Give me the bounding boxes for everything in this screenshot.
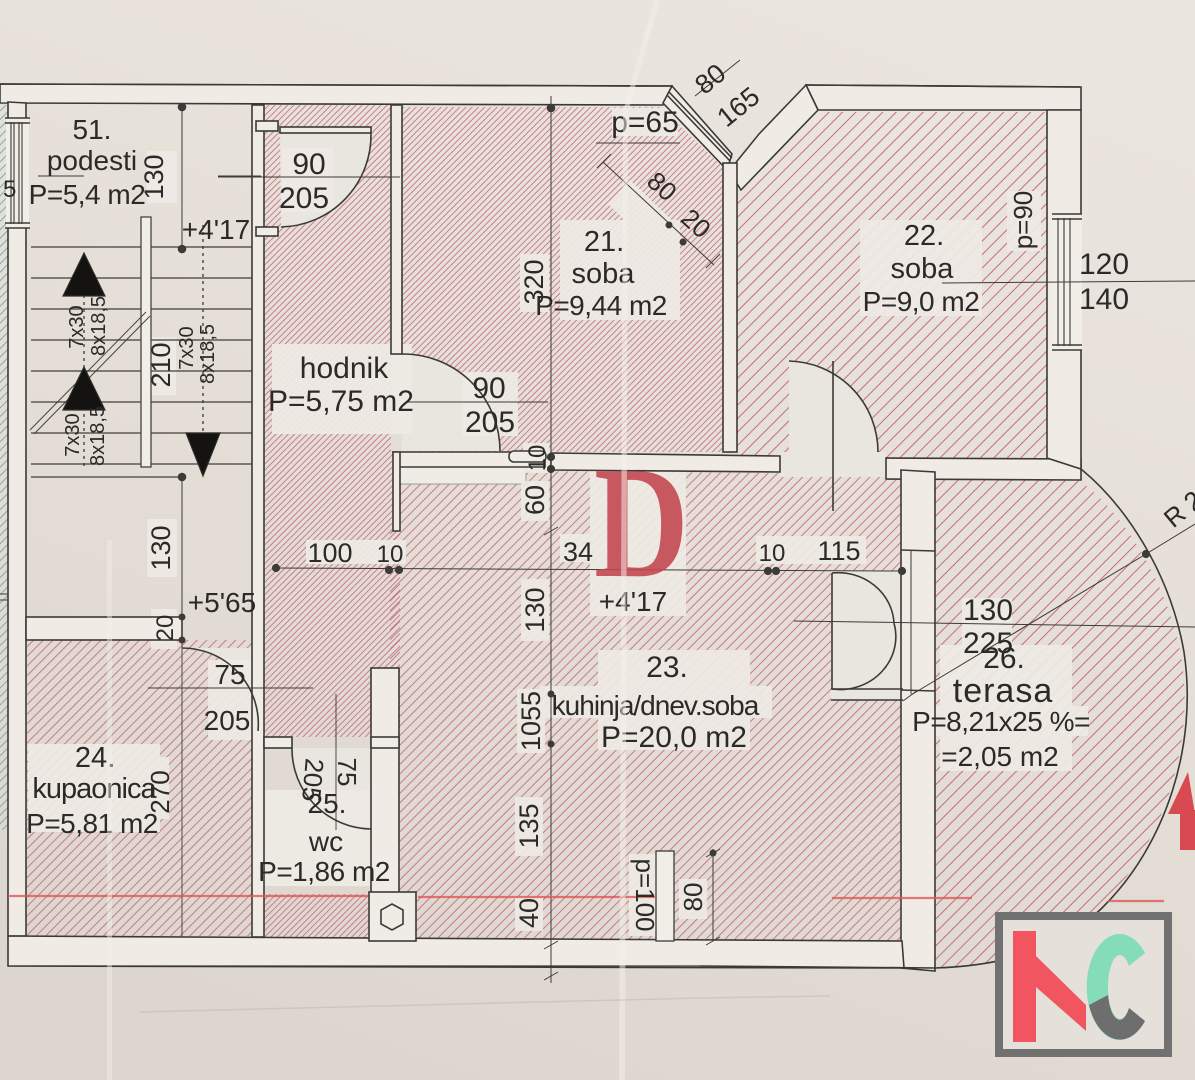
svg-text:+4'17: +4'17 bbox=[182, 214, 250, 245]
svg-text:210: 210 bbox=[146, 342, 176, 387]
svg-text:75: 75 bbox=[332, 758, 362, 787]
svg-text:10: 10 bbox=[377, 541, 404, 568]
svg-text:205: 205 bbox=[465, 406, 515, 439]
svg-text:soba: soba bbox=[891, 253, 955, 285]
svg-text:140: 140 bbox=[1079, 283, 1129, 316]
svg-text:8x18,5: 8x18,5 bbox=[197, 324, 219, 384]
svg-text:60: 60 bbox=[520, 485, 550, 515]
svg-text:23.: 23. bbox=[646, 651, 688, 684]
svg-text:115: 115 bbox=[817, 536, 860, 566]
svg-text:P=8,21x25 %=: P=8,21x25 %= bbox=[912, 706, 1090, 737]
svg-text:205: 205 bbox=[279, 182, 329, 215]
svg-text:+5'65: +5'65 bbox=[188, 587, 256, 618]
svg-text:20: 20 bbox=[152, 615, 179, 642]
svg-text:40: 40 bbox=[514, 898, 544, 928]
svg-text:hodnik: hodnik bbox=[300, 352, 389, 385]
svg-text:P=1,86 m2: P=1,86 m2 bbox=[258, 856, 390, 887]
svg-text:p=100: p=100 bbox=[630, 858, 660, 931]
svg-text:205: 205 bbox=[204, 705, 251, 736]
svg-text:51.: 51. bbox=[73, 114, 112, 145]
svg-text:225: 225 bbox=[963, 627, 1013, 660]
svg-text:P=5,4 m2: P=5,4 m2 bbox=[29, 179, 146, 210]
svg-text:90: 90 bbox=[292, 148, 325, 181]
svg-text:P=5,75 m2: P=5,75 m2 bbox=[268, 385, 414, 418]
svg-text:270: 270 bbox=[145, 770, 175, 813]
svg-text:kupaonica: kupaonica bbox=[32, 773, 157, 805]
svg-text:320: 320 bbox=[519, 259, 549, 304]
svg-text:wc: wc bbox=[308, 826, 343, 857]
svg-text:=2,05 m2: =2,05 m2 bbox=[941, 741, 1059, 772]
svg-text:75: 75 bbox=[214, 659, 245, 690]
svg-text:terasa: terasa bbox=[953, 672, 1054, 710]
svg-text:p=90: p=90 bbox=[1008, 191, 1038, 250]
svg-text:P=9,0 m2: P=9,0 m2 bbox=[863, 286, 980, 317]
svg-text:34: 34 bbox=[563, 537, 593, 567]
svg-text:D: D bbox=[594, 434, 689, 611]
svg-text:100: 100 bbox=[307, 538, 352, 568]
svg-text:P=9,44 m2: P=9,44 m2 bbox=[535, 290, 667, 321]
svg-text:130: 130 bbox=[520, 587, 550, 632]
svg-text:130: 130 bbox=[139, 154, 169, 199]
svg-text:7x30: 7x30 bbox=[62, 413, 84, 456]
svg-text:130: 130 bbox=[963, 594, 1013, 627]
svg-text:1055: 1055 bbox=[516, 691, 546, 751]
svg-text:21.: 21. bbox=[584, 226, 624, 258]
svg-text:7x30: 7x30 bbox=[66, 305, 88, 348]
svg-text:10: 10 bbox=[524, 445, 551, 472]
svg-text:120: 120 bbox=[1079, 248, 1129, 281]
svg-text:8x18,5: 8x18,5 bbox=[88, 296, 110, 356]
svg-text:8x18,5: 8x18,5 bbox=[87, 406, 109, 466]
svg-text:podesti: podesti bbox=[47, 145, 137, 176]
svg-text:10: 10 bbox=[759, 540, 786, 567]
svg-text:90: 90 bbox=[472, 372, 505, 405]
svg-text:5: 5 bbox=[3, 176, 16, 203]
svg-text:135: 135 bbox=[514, 803, 544, 848]
svg-text:P=5,81 m2: P=5,81 m2 bbox=[26, 808, 158, 839]
svg-text:kuhinja/dnev.soba: kuhinja/dnev.soba bbox=[552, 690, 760, 721]
svg-text:22.: 22. bbox=[904, 220, 944, 252]
svg-text:130: 130 bbox=[146, 525, 176, 570]
svg-text:205: 205 bbox=[296, 757, 330, 803]
svg-text:7x30: 7x30 bbox=[176, 326, 198, 369]
svg-text:p=65: p=65 bbox=[611, 106, 679, 139]
svg-text:80: 80 bbox=[678, 883, 708, 912]
